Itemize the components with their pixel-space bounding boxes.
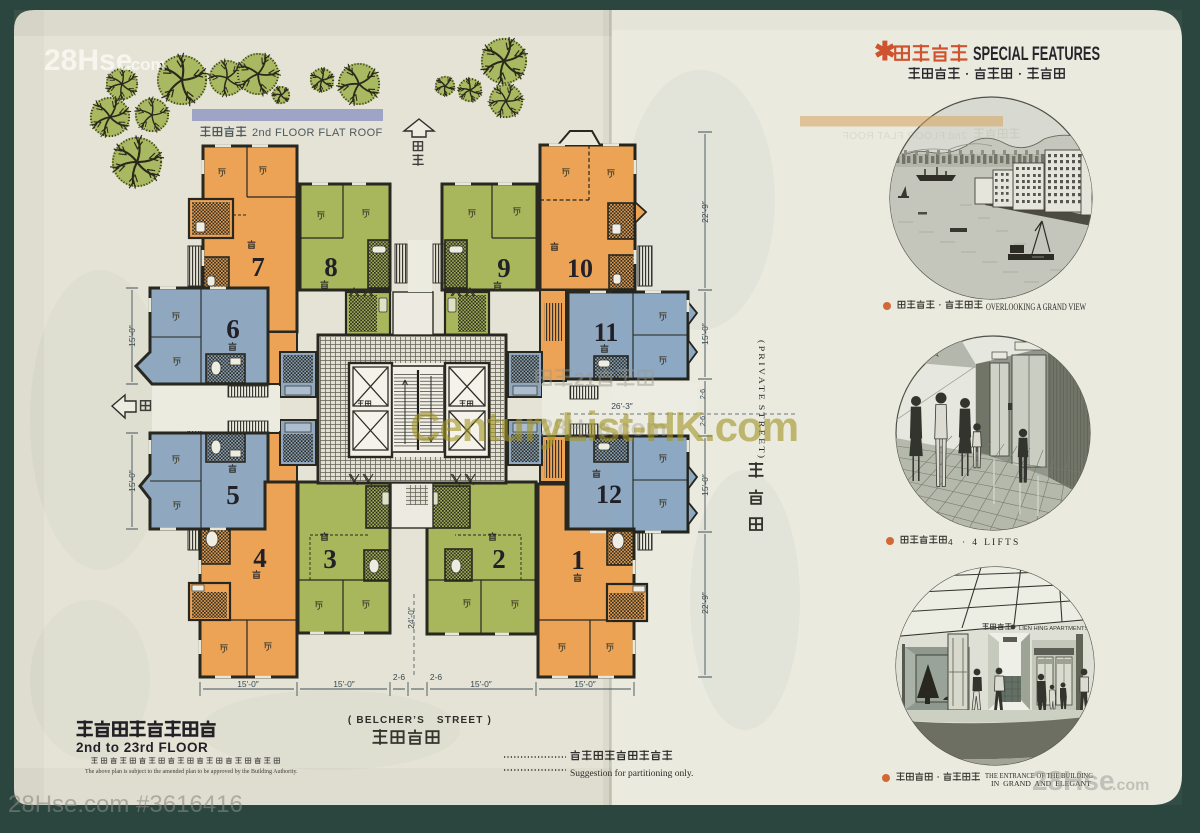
svg-text:CenturyList-HK.com: CenturyList-HK.com bbox=[410, 403, 798, 450]
svg-text:.com: .com bbox=[1112, 777, 1149, 794]
svg-text:28Hse.com #3616416: 28Hse.com #3616416 bbox=[8, 791, 243, 818]
svg-text:28Hse: 28Hse bbox=[44, 44, 132, 77]
svg-text:21: 21 bbox=[574, 370, 596, 391]
svg-text:.com: .com bbox=[126, 55, 166, 74]
svg-text:28Hse: 28Hse bbox=[1032, 765, 1115, 796]
